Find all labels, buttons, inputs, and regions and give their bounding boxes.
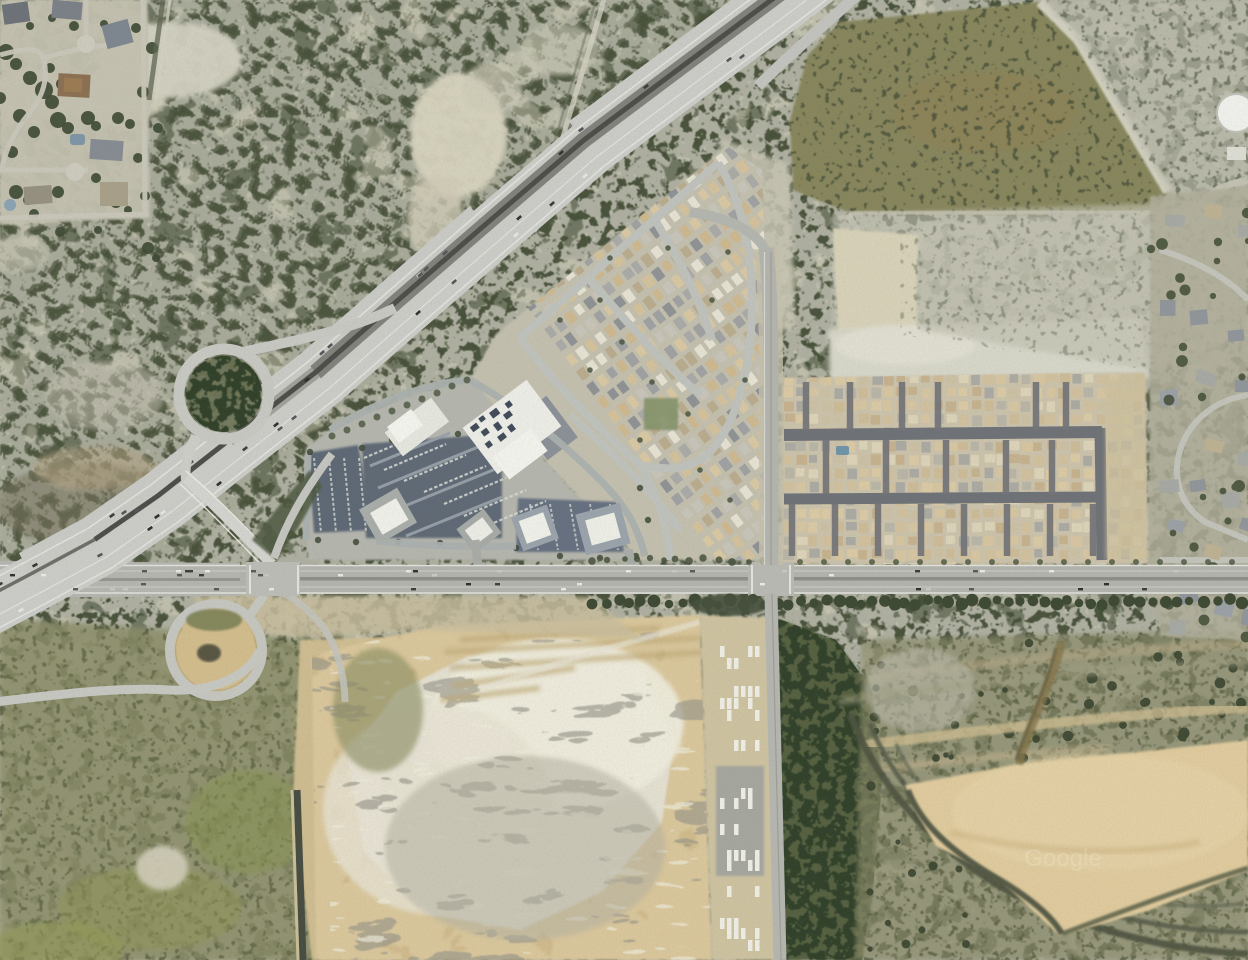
svg-text:Google: Google	[1024, 845, 1101, 872]
